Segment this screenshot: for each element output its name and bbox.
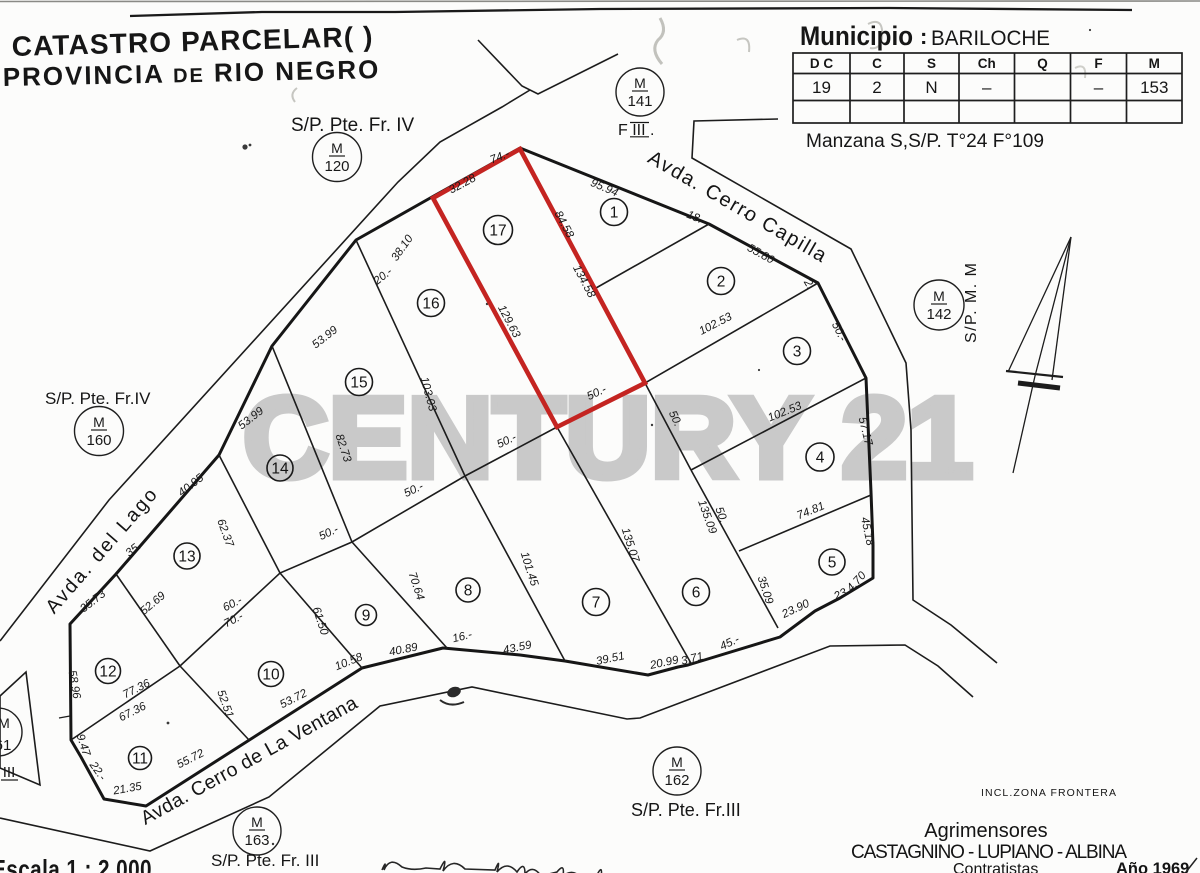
svg-text:160: 160: [86, 432, 111, 449]
svg-text:–: –: [1094, 78, 1104, 97]
svg-text:120: 120: [324, 158, 349, 175]
svg-text:8: 8: [464, 583, 473, 600]
svg-text:Q: Q: [1037, 56, 1048, 71]
svg-text:S: S: [927, 56, 936, 71]
svg-text:S/P. M. M: S/P. M. M: [963, 263, 980, 343]
svg-text:BARILOCHE: BARILOCHE: [931, 27, 1050, 50]
svg-text:Municipio: Municipio: [800, 21, 913, 51]
svg-text::: :: [920, 24, 927, 49]
svg-text:7: 7: [592, 595, 601, 612]
svg-text:162: 162: [664, 772, 689, 789]
svg-text:15: 15: [350, 375, 367, 392]
svg-text:5: 5: [828, 555, 837, 572]
svg-text:14: 14: [271, 461, 289, 478]
svg-text:M: M: [0, 715, 10, 731]
svg-text:2: 2: [872, 78, 881, 97]
svg-text:M: M: [331, 140, 343, 156]
svg-text:R: R: [948, 464, 957, 478]
svg-text:Escala 1 : 2.000: Escala 1 : 2.000: [0, 854, 152, 873]
svg-text:2: 2: [717, 274, 726, 291]
svg-text:M: M: [671, 754, 683, 770]
svg-text:61: 61: [0, 737, 11, 754]
svg-text:C: C: [872, 56, 882, 71]
svg-text:D C: D C: [810, 56, 834, 71]
svg-text:153: 153: [1140, 78, 1168, 97]
svg-text:12: 12: [99, 664, 116, 681]
svg-text:S/P. Pte. Fr. IV: S/P. Pte. Fr. IV: [291, 115, 415, 136]
svg-text:INCL.ZONA FRONTERA: INCL.ZONA FRONTERA: [981, 787, 1118, 799]
svg-text:19: 19: [812, 78, 831, 97]
svg-text:M: M: [251, 814, 263, 830]
svg-text:4: 4: [816, 450, 825, 467]
svg-text:142: 142: [926, 306, 951, 323]
svg-text:10: 10: [262, 667, 280, 684]
svg-text:M: M: [93, 414, 105, 430]
svg-text:S/P. Pte. Fr.III: S/P. Pte. Fr.III: [631, 800, 741, 820]
svg-text:Ch: Ch: [978, 56, 996, 71]
svg-text:F: F: [1094, 56, 1102, 71]
svg-text:6: 6: [692, 585, 701, 602]
svg-text:N: N: [925, 78, 937, 97]
svg-text:Año 1969: Año 1969: [1116, 860, 1189, 873]
svg-text:M: M: [1149, 56, 1160, 71]
svg-text:III: III: [3, 764, 16, 781]
svg-text:17: 17: [489, 223, 506, 240]
svg-text:Contratistas: Contratistas: [953, 861, 1038, 873]
svg-text:16: 16: [422, 296, 439, 313]
svg-text:1: 1: [610, 205, 619, 222]
svg-text:11: 11: [132, 751, 148, 768]
svg-text:3: 3: [793, 344, 802, 361]
svg-text:Manzana S,S/P. T°24 F°109: Manzana S,S/P. T°24 F°109: [806, 131, 1044, 152]
svg-text:–: –: [982, 78, 992, 97]
svg-text:S/P. Pte. Fr.IV: S/P. Pte. Fr.IV: [45, 389, 151, 408]
svg-text:9: 9: [362, 608, 371, 625]
svg-text:141: 141: [627, 93, 652, 110]
svg-text:M: M: [634, 75, 646, 91]
svg-text:Agrimensores: Agrimensores: [924, 820, 1047, 842]
svg-text:S/P. Ptе. Fr. III: S/P. Ptе. Fr. III: [211, 851, 319, 870]
svg-text:13: 13: [178, 549, 195, 566]
svg-text:163: 163: [244, 832, 269, 849]
svg-text:CASTAGNINO - LUPIANO - ALBINA: CASTAGNINO - LUPIANO - ALBINA: [851, 842, 1127, 863]
svg-text:M: M: [933, 288, 945, 304]
